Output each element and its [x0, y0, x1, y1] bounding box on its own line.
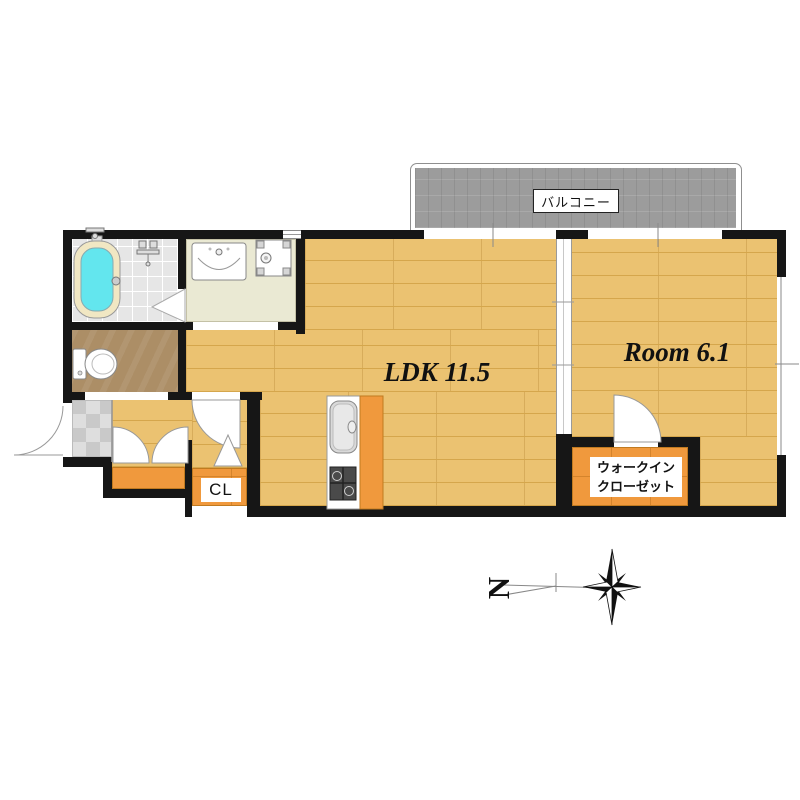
floor-bathroom: [72, 239, 178, 322]
room-label: Room 6.1: [617, 336, 737, 368]
wall-segment: [178, 330, 186, 400]
floor-washroom: [186, 239, 296, 322]
wall-segment: [278, 322, 305, 330]
floor-vestibule: [192, 400, 247, 468]
sliding-partition: [556, 239, 572, 434]
walk-in-closet-label-line2: クローゼット: [597, 477, 675, 496]
wall-segment: [777, 230, 786, 277]
wall-segment: [103, 489, 192, 498]
floor-entrance: [72, 400, 112, 457]
wall-segment: [688, 437, 700, 517]
wall-segment: [168, 392, 192, 400]
closet-label: CL: [201, 478, 241, 502]
wall-segment: [63, 322, 186, 330]
floor-shoe-closet: [112, 467, 185, 489]
walk-in-closet-label: ウォークイン クローゼット: [590, 457, 682, 497]
wall-segment: [556, 434, 572, 517]
wall-segment: [556, 230, 588, 239]
wall-segment: [178, 239, 186, 289]
wall-segment: [186, 322, 193, 330]
wall-segment: [777, 455, 786, 517]
ldk-label: LDK 11.5: [377, 356, 497, 388]
floor-ldk-lower: [260, 392, 556, 506]
wall-segment: [63, 392, 85, 400]
wall-segment: [247, 506, 785, 517]
compass-rose-icon: [504, 549, 641, 625]
floor-toilet: [72, 330, 178, 392]
balcony-label: バルコニー: [533, 189, 619, 213]
wall-segment: [296, 230, 305, 334]
wall-segment: [247, 392, 260, 517]
wall-segment: [722, 230, 785, 239]
compass-north-label: N: [481, 573, 517, 603]
floor-ldk-mid: [186, 330, 556, 392]
floor-plan: バルコニー LDK 11.5 Room 6.1 ウォークイン クローゼット CL…: [0, 0, 800, 800]
wall-segment: [572, 437, 614, 447]
floor-hallway: [112, 400, 192, 467]
wall-segment: [63, 230, 424, 239]
floor-ldk-upper: [305, 239, 556, 330]
wall-segment: [185, 440, 192, 517]
walk-in-closet-label-line1: ウォークイン: [597, 458, 675, 477]
floor-room-lower: [700, 437, 777, 506]
entrance-door-arc-icon: [14, 406, 63, 455]
wall-segment: [63, 230, 72, 403]
